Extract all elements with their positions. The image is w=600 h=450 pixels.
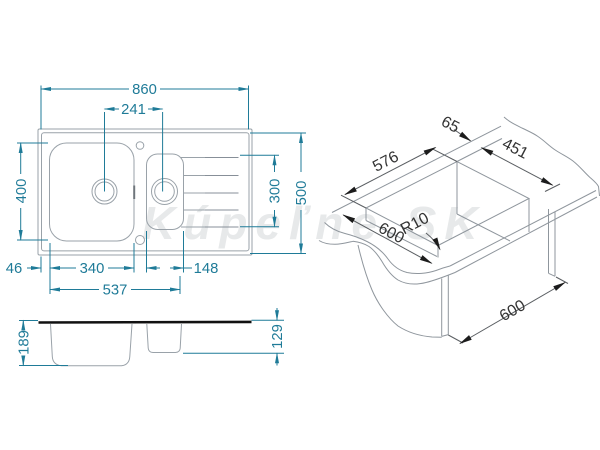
svg-text:148: 148 [194,261,219,277]
svg-text:500: 500 [294,181,310,206]
svg-text:860: 860 [132,82,157,98]
svg-text:300: 300 [268,179,284,204]
svg-text:241: 241 [121,102,146,118]
svg-text:400: 400 [14,179,30,204]
svg-text:451: 451 [499,135,531,162]
svg-text:129: 129 [270,324,286,349]
svg-text:340: 340 [80,261,105,277]
svg-text:600: 600 [497,297,529,325]
svg-text:537: 537 [103,283,128,299]
svg-text:189: 189 [17,330,33,355]
svg-text:576: 576 [370,148,402,175]
svg-text:65: 65 [438,113,462,136]
svg-text:46: 46 [6,261,22,277]
